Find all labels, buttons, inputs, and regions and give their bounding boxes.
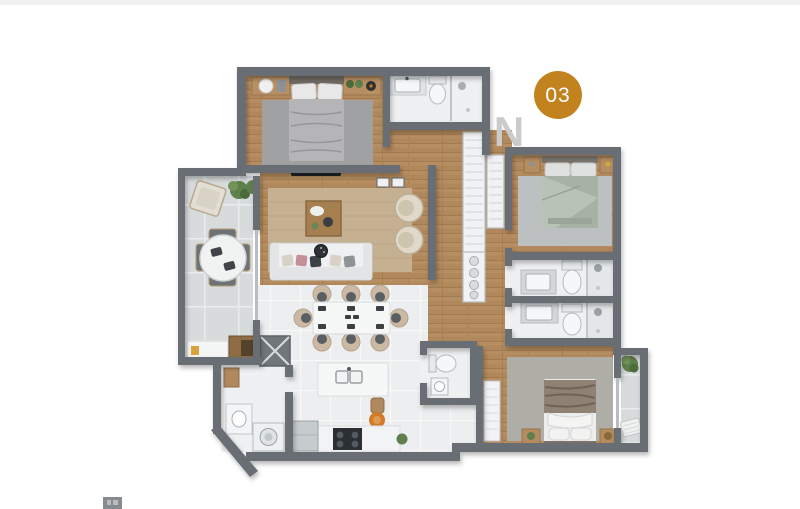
toilet xyxy=(562,261,582,294)
top-edge-band xyxy=(0,0,800,5)
coffee-table xyxy=(306,201,341,236)
bedroom-2 xyxy=(518,156,616,246)
closet xyxy=(484,381,500,441)
shower xyxy=(587,260,613,296)
balcony-sliding-door xyxy=(255,230,258,320)
wall-panel xyxy=(392,178,404,187)
bottom-left-mark xyxy=(103,497,122,509)
badge-number: 03 xyxy=(545,84,570,107)
washing-machine xyxy=(253,423,284,451)
toilet xyxy=(562,304,582,335)
dresser-with-mirror xyxy=(252,77,290,95)
accent-chair xyxy=(395,226,423,254)
cutting-board xyxy=(371,398,384,413)
toilet xyxy=(429,76,446,104)
cooktop-stove xyxy=(333,428,362,450)
floor-plan-figure: N 03 xyxy=(0,0,800,509)
wardrobe-tall xyxy=(463,132,485,302)
refrigerator xyxy=(290,421,318,451)
round-tray-table xyxy=(315,245,328,258)
toilet xyxy=(429,355,456,372)
wall-panel xyxy=(377,178,389,187)
ironing-board xyxy=(224,368,239,387)
letter-n-watermark: N xyxy=(494,108,524,155)
double-bed xyxy=(544,379,596,445)
accent-chair xyxy=(395,194,423,222)
unit-number-badge: 03 xyxy=(534,71,582,119)
service-shaft xyxy=(260,336,290,366)
console-with-plants xyxy=(343,77,381,95)
screenshot-frame: N 03 xyxy=(0,0,800,509)
wardrobe-short xyxy=(487,155,504,228)
plant xyxy=(397,434,408,445)
bedroom3-sliding-door xyxy=(616,378,619,428)
shower xyxy=(587,303,613,338)
double-bed xyxy=(542,156,598,228)
sofa xyxy=(270,243,372,280)
counter-item xyxy=(191,346,199,355)
